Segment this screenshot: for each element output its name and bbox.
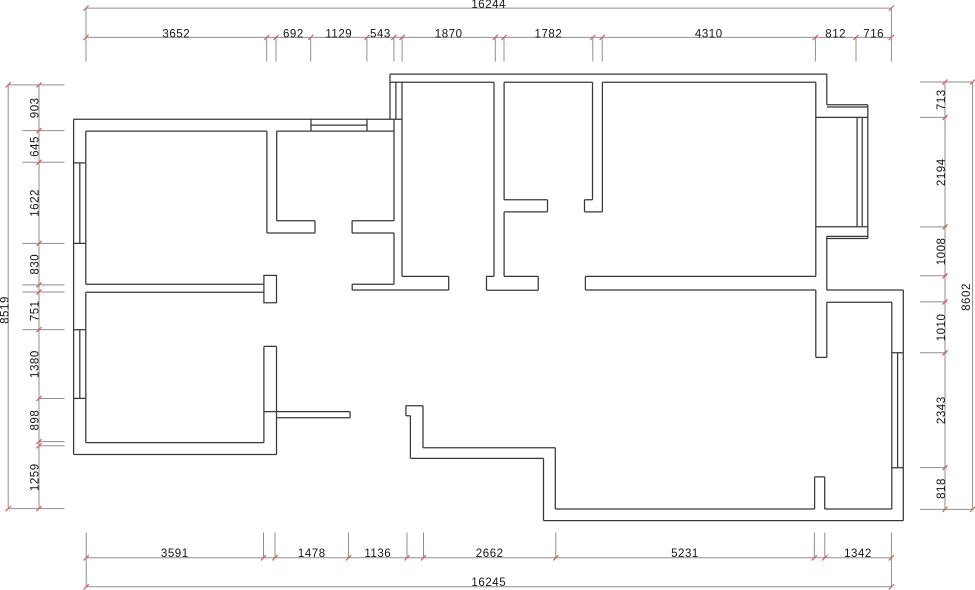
svg-text:1342: 1342 bbox=[844, 548, 872, 560]
svg-text:2194: 2194 bbox=[936, 158, 948, 186]
svg-text:2343: 2343 bbox=[936, 396, 948, 424]
svg-text:1010: 1010 bbox=[936, 314, 948, 342]
svg-text:1478: 1478 bbox=[298, 548, 326, 560]
svg-text:716: 716 bbox=[863, 28, 884, 40]
svg-text:903: 903 bbox=[30, 97, 42, 118]
svg-text:1129: 1129 bbox=[325, 28, 352, 40]
svg-text:692: 692 bbox=[283, 28, 304, 40]
svg-text:1870: 1870 bbox=[435, 28, 463, 40]
svg-text:830: 830 bbox=[30, 254, 42, 275]
svg-text:1622: 1622 bbox=[30, 189, 42, 217]
svg-text:3652: 3652 bbox=[162, 28, 190, 40]
svg-text:3591: 3591 bbox=[161, 548, 189, 560]
svg-text:1380: 1380 bbox=[30, 350, 42, 378]
svg-text:16245: 16245 bbox=[471, 577, 506, 589]
svg-text:713: 713 bbox=[936, 89, 948, 110]
svg-text:2662: 2662 bbox=[476, 548, 504, 560]
svg-text:16244: 16244 bbox=[471, 0, 506, 11]
svg-text:543: 543 bbox=[370, 28, 391, 40]
svg-text:812: 812 bbox=[825, 28, 846, 40]
svg-text:8602: 8602 bbox=[961, 283, 973, 311]
svg-text:1008: 1008 bbox=[936, 238, 948, 266]
svg-text:4310: 4310 bbox=[695, 28, 723, 40]
svg-text:645: 645 bbox=[30, 136, 42, 157]
svg-text:8519: 8519 bbox=[0, 296, 12, 324]
svg-text:898: 898 bbox=[30, 410, 42, 431]
svg-text:751: 751 bbox=[30, 300, 42, 321]
svg-text:1782: 1782 bbox=[535, 28, 563, 40]
svg-text:1136: 1136 bbox=[364, 548, 391, 560]
svg-text:5231: 5231 bbox=[671, 548, 699, 560]
svg-text:1259: 1259 bbox=[30, 463, 42, 491]
svg-text:818: 818 bbox=[936, 478, 948, 499]
